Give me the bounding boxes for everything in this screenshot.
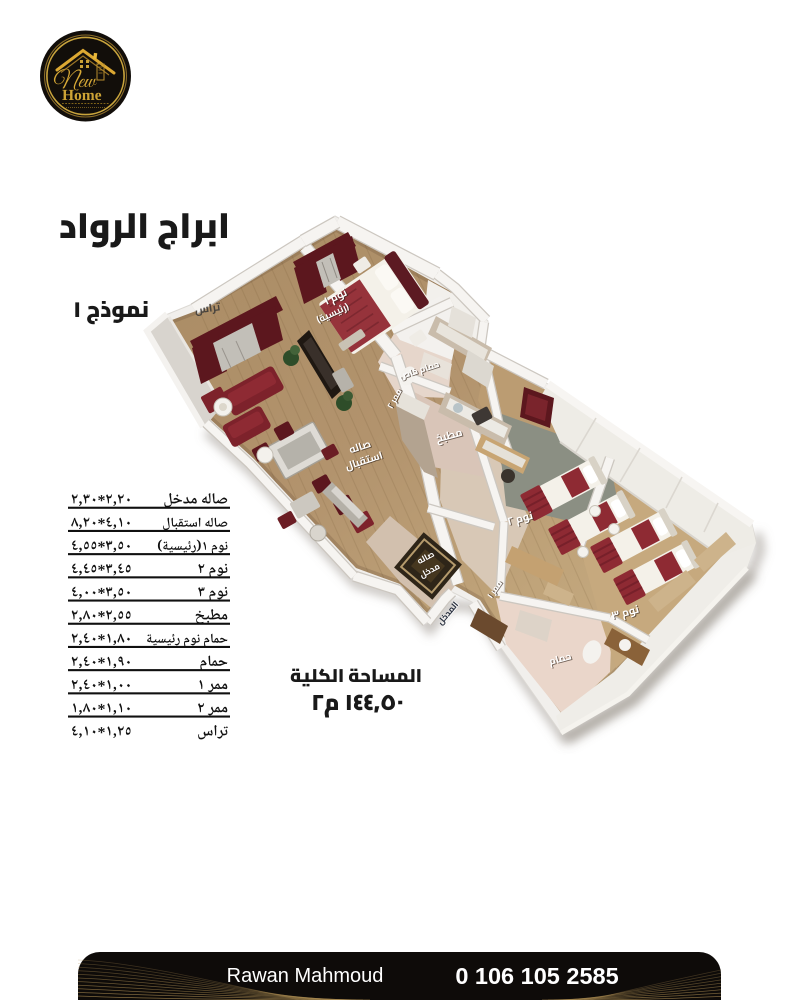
svg-text:0 106 105 2585: 0 106 105 2585: [455, 963, 618, 989]
svg-text:Rawan Mahmoud: Rawan Mahmoud: [227, 965, 384, 987]
